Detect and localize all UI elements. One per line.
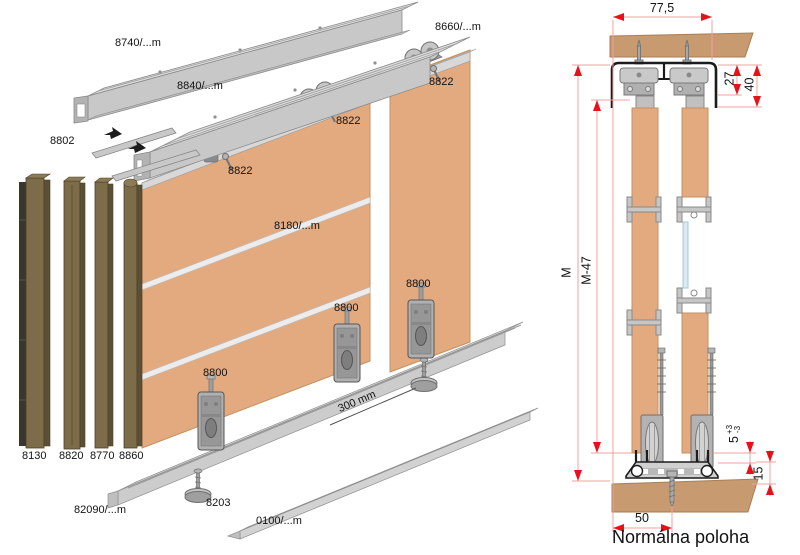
post-8860 xyxy=(124,179,142,448)
label-door-top-rail-8660: 8660/...m xyxy=(435,21,481,33)
label-insert-8802: 8802 xyxy=(50,135,74,147)
section-caption: Normálna poloha xyxy=(612,527,749,548)
dim-40: 40 xyxy=(744,72,757,98)
section-door-left xyxy=(632,108,658,453)
label-post-8860: 8860 xyxy=(119,450,143,462)
label-double-track-8840: 8840/...m xyxy=(177,80,223,92)
label-post-8130: 8130 xyxy=(22,450,46,462)
label-bracket-8800-b: 8800 xyxy=(334,302,358,314)
label-roller-8822-b: 8822 xyxy=(336,115,360,127)
label-roller-8822-c: 8822 xyxy=(228,165,252,177)
label-bottom-guide-0100: 0100/...m xyxy=(256,515,302,527)
label-post-8820: 8820 xyxy=(59,450,83,462)
arrow-icon xyxy=(104,127,122,139)
dim-50: 50 xyxy=(622,512,662,525)
dim-M-47: M-47 xyxy=(581,251,594,291)
section-doors xyxy=(627,108,711,453)
floor-panel xyxy=(612,479,758,512)
label-bottom-track-82090: 82090/...m xyxy=(74,504,126,516)
post-8770 xyxy=(95,178,113,448)
dim-5-value: 5 xyxy=(728,436,741,443)
dim-5-tolerance: 5 +3 -3 xyxy=(725,413,743,455)
post-8820 xyxy=(64,177,85,449)
dim-M: M xyxy=(561,260,574,286)
label-glide-8203: 8203 xyxy=(206,497,230,509)
label-bracket-8800-c: 8800 xyxy=(203,367,227,379)
section-door-right-top xyxy=(682,108,708,197)
label-divider-8180: 8180/...m xyxy=(274,220,320,232)
label-post-8770: 8770 xyxy=(90,450,114,462)
label-bracket-8800-a: 8800 xyxy=(406,278,430,290)
label-roller-8822-a: 8822 xyxy=(429,76,453,88)
glass-pane xyxy=(683,222,688,288)
dim-27: 27 xyxy=(724,66,737,92)
ceiling-panel xyxy=(610,33,753,57)
technical-drawing-page: 8740/...m 8840/...m 8660/...m 8802 8822 … xyxy=(0,0,800,555)
dim-5-tolerances: +3 -3 xyxy=(726,425,742,434)
dim-width-77-5: 77,5 xyxy=(638,2,686,15)
dim-15: 15 xyxy=(753,461,766,487)
label-top-rail-8740: 8740/...m xyxy=(115,37,161,49)
post-8130 xyxy=(19,174,50,448)
drawing-canvas xyxy=(0,0,800,555)
